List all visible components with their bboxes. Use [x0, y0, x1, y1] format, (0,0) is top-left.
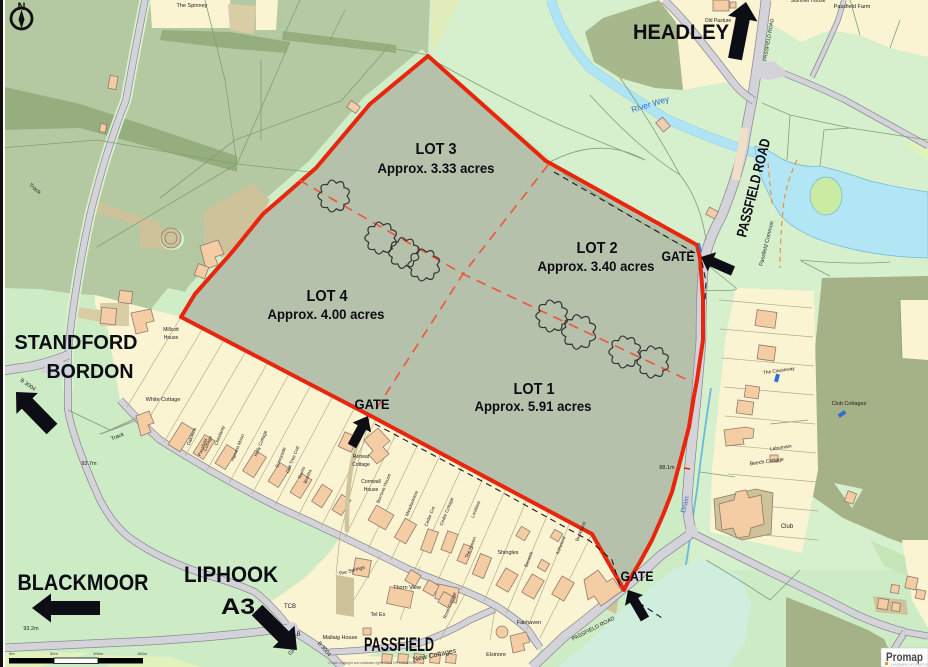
svg-text:HEADLEY: HEADLEY: [633, 21, 729, 44]
svg-text:GATE: GATE: [662, 248, 695, 264]
svg-text:LOT 3: LOT 3: [416, 141, 457, 158]
svg-text:Approx. 5.91 acres: Approx. 5.91 acres: [475, 398, 592, 414]
svg-text:Cornwall: Cornwall: [361, 479, 380, 485]
svg-text:Passfield Farm: Passfield Farm: [834, 4, 871, 10]
svg-text:LIPHOOK: LIPHOOK: [184, 562, 278, 587]
svg-text:GATE: GATE: [355, 396, 390, 412]
svg-text:White Cottage: White Cottage: [146, 397, 181, 403]
svg-text:Crown copyright and database r: Crown copyright and database rights 2023…: [328, 661, 416, 665]
svg-text:LOT 2: LOT 2: [577, 240, 618, 257]
svg-text:Shingles: Shingles: [497, 550, 518, 556]
svg-text:LOT 4: LOT 4: [307, 288, 348, 305]
svg-text:Cottage: Cottage: [352, 462, 370, 468]
svg-text:150m: 150m: [137, 651, 148, 656]
svg-text:Fairhaven: Fairhaven: [517, 620, 541, 626]
svg-text:BLACKMOOR: BLACKMOOR: [18, 570, 149, 595]
svg-text:Summer House: Summer House: [791, 0, 826, 4]
svg-text:0m: 0m: [9, 651, 15, 656]
svg-text:Retreat: Retreat: [353, 454, 370, 460]
svg-text:House: House: [164, 335, 179, 341]
svg-text:Approx. 4.00 acres: Approx. 4.00 acres: [268, 306, 385, 322]
svg-text:TCB: TCB: [284, 604, 296, 610]
svg-text:STANDFORD: STANDFORD: [15, 332, 138, 354]
svg-text:A3: A3: [221, 594, 255, 619]
svg-text:93.2m: 93.2m: [23, 626, 39, 632]
svg-text:BORDON: BORDON: [47, 361, 134, 383]
svg-text:House: House: [364, 487, 379, 493]
svg-text:100m: 100m: [93, 651, 104, 656]
svg-text:Thorn View: Thorn View: [393, 585, 421, 591]
svg-text:PASSFIELD: PASSFIELD: [364, 634, 434, 656]
svg-text:Approx. 3.33 acres: Approx. 3.33 acres: [378, 160, 495, 176]
svg-text:88.1m: 88.1m: [659, 465, 675, 471]
svg-text:LANDMARK INFORMATION: LANDMARK INFORMATION: [891, 663, 928, 667]
svg-text:LOT 1: LOT 1: [514, 381, 555, 398]
svg-text:Club Cottages: Club Cottages: [832, 401, 867, 407]
svg-text:Tel Ex: Tel Ex: [371, 612, 386, 618]
svg-text:93.7m: 93.7m: [81, 461, 97, 467]
svg-text:GATE: GATE: [621, 568, 654, 584]
svg-text:Elsinore: Elsinore: [486, 652, 506, 658]
svg-text:Approx. 3.40 acres: Approx. 3.40 acres: [538, 258, 655, 274]
svg-text:Millcott: Millcott: [163, 327, 179, 333]
svg-text:50m: 50m: [50, 651, 58, 656]
svg-text:The Spinney: The Spinney: [177, 3, 208, 9]
svg-text:Mallaig House: Mallaig House: [323, 635, 358, 641]
svg-text:Club: Club: [781, 524, 794, 530]
